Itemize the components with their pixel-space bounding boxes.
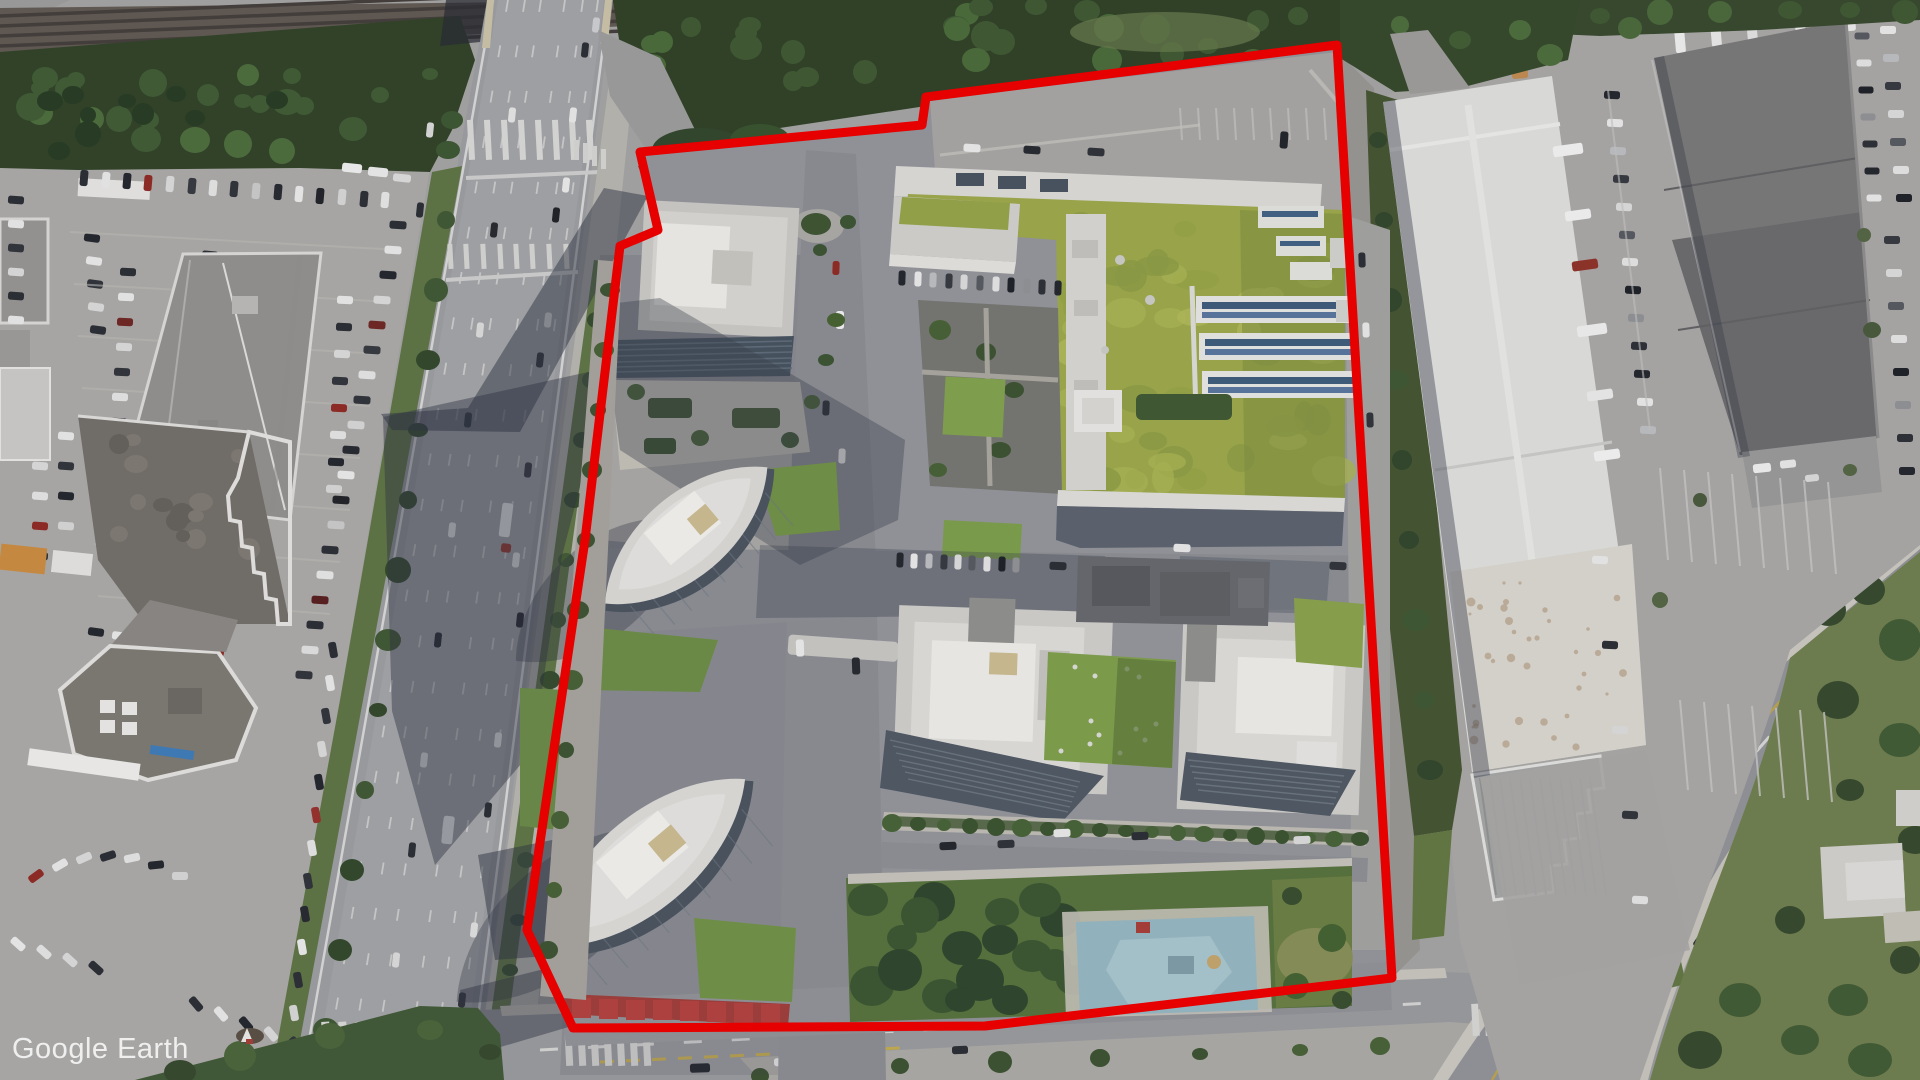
svg-text:Google Earth: Google Earth — [12, 1033, 189, 1065]
